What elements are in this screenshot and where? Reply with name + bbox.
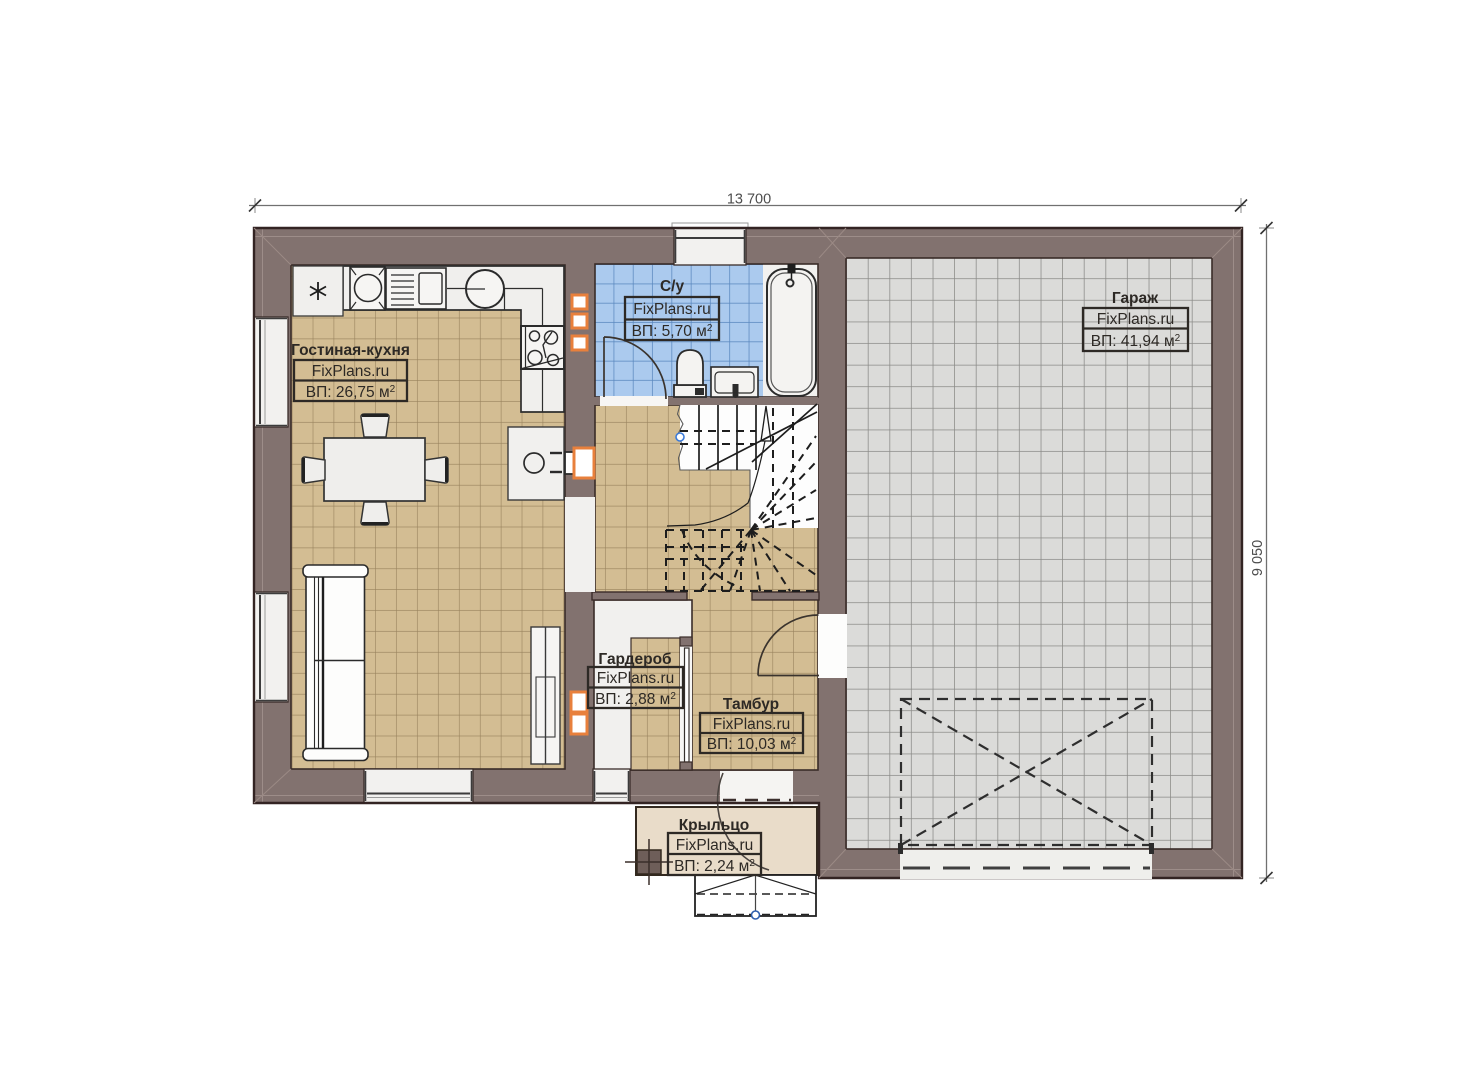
svg-text:FixPlans.ru: FixPlans.ru: [597, 670, 675, 687]
svg-text:FixPlans.ru: FixPlans.ru: [713, 716, 791, 733]
svg-text:Гараж: Гараж: [1112, 290, 1159, 307]
svg-text:ВП: 10,03 м2: ВП: 10,03 м2: [707, 736, 797, 753]
svg-text:С/у: С/у: [660, 278, 685, 295]
svg-text:ВП: 41,94 м2: ВП: 41,94 м2: [1091, 333, 1181, 350]
svg-text:ВП: 5,70 м2: ВП: 5,70 м2: [632, 323, 713, 340]
svg-text:FixPlans.ru: FixPlans.ru: [312, 363, 390, 380]
svg-text:9 050: 9 050: [1250, 540, 1266, 576]
svg-text:Гардероб: Гардероб: [598, 651, 671, 668]
svg-text:Крыльцо: Крыльцо: [679, 817, 750, 834]
svg-text:FixPlans.ru: FixPlans.ru: [1097, 311, 1175, 328]
svg-text:Тамбур: Тамбур: [723, 696, 779, 713]
svg-text:ВП: 2,24 м2: ВП: 2,24 м2: [674, 858, 755, 875]
svg-text:Гостиная-кухня: Гостиная-кухня: [291, 342, 410, 359]
svg-text:ВП: 26,75 м2: ВП: 26,75 м2: [306, 384, 396, 401]
svg-text:ВП: 2,88 м2: ВП: 2,88 м2: [595, 691, 676, 708]
svg-text:FixPlans.ru: FixPlans.ru: [633, 301, 711, 318]
svg-text:FixPlans.ru: FixPlans.ru: [676, 837, 754, 854]
svg-text:13 700: 13 700: [727, 192, 771, 208]
